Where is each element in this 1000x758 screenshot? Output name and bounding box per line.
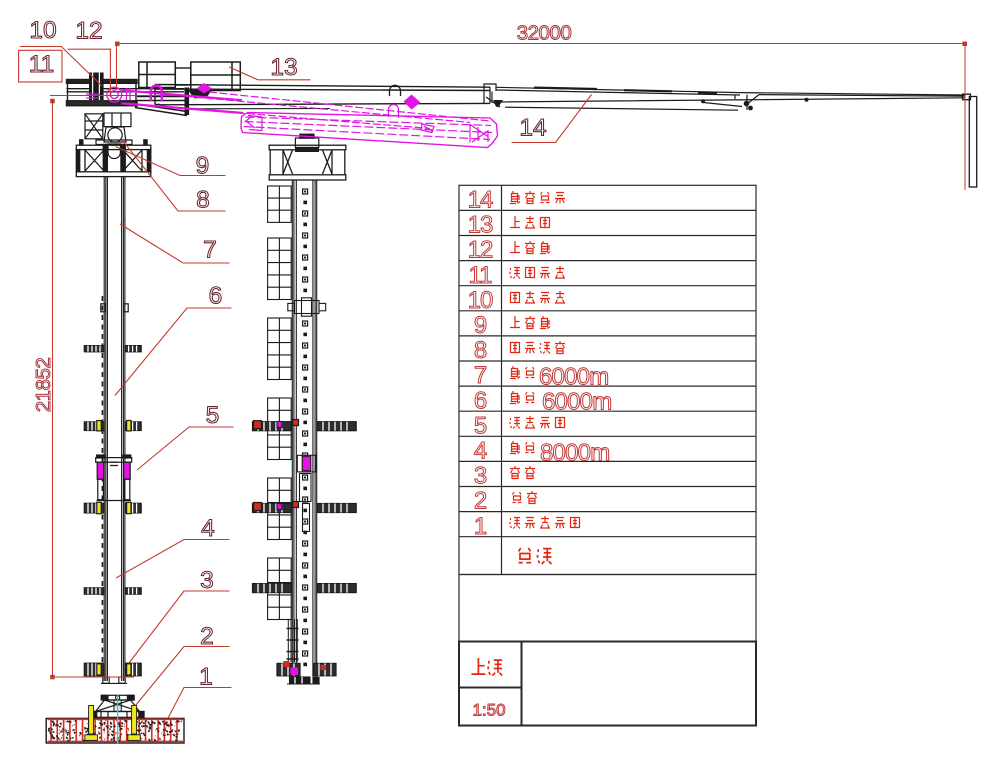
svg-text:2: 2 (200, 623, 214, 650)
svg-text:1: 1 (199, 664, 213, 691)
svg-text:1: 1 (474, 513, 487, 540)
svg-text:14: 14 (519, 115, 546, 142)
svg-text:11: 11 (469, 262, 493, 289)
svg-text:9: 9 (196, 153, 210, 180)
svg-text:8: 8 (474, 337, 487, 364)
svg-text:11: 11 (29, 51, 54, 78)
svg-text:14: 14 (468, 187, 493, 214)
svg-text:10: 10 (29, 17, 56, 44)
svg-text:5: 5 (206, 402, 220, 429)
svg-text:2: 2 (474, 488, 487, 515)
svg-text:8: 8 (196, 187, 210, 214)
svg-text:13: 13 (270, 54, 297, 81)
svg-text:3: 3 (200, 567, 214, 594)
svg-text:4: 4 (474, 438, 487, 465)
svg-text:1:50: 1:50 (472, 701, 505, 720)
svg-text:5: 5 (474, 412, 487, 439)
svg-text:32000: 32000 (517, 22, 572, 45)
svg-text:9: 9 (474, 312, 487, 339)
svg-text:12: 12 (75, 18, 102, 45)
svg-text:13: 13 (468, 212, 493, 239)
svg-text:12: 12 (468, 237, 493, 264)
svg-text:6000m: 6000m (542, 389, 611, 416)
svg-text:6: 6 (474, 387, 487, 414)
svg-text:8000m: 8000m (540, 440, 609, 467)
svg-text:21852: 21852 (32, 358, 55, 413)
svg-text:7: 7 (474, 362, 487, 389)
svg-text:6: 6 (209, 283, 223, 310)
svg-text:7: 7 (203, 237, 217, 264)
svg-text:10: 10 (468, 287, 493, 314)
svg-text:6000m: 6000m (539, 364, 608, 391)
svg-text:3: 3 (474, 463, 487, 490)
svg-text:4: 4 (201, 515, 215, 542)
